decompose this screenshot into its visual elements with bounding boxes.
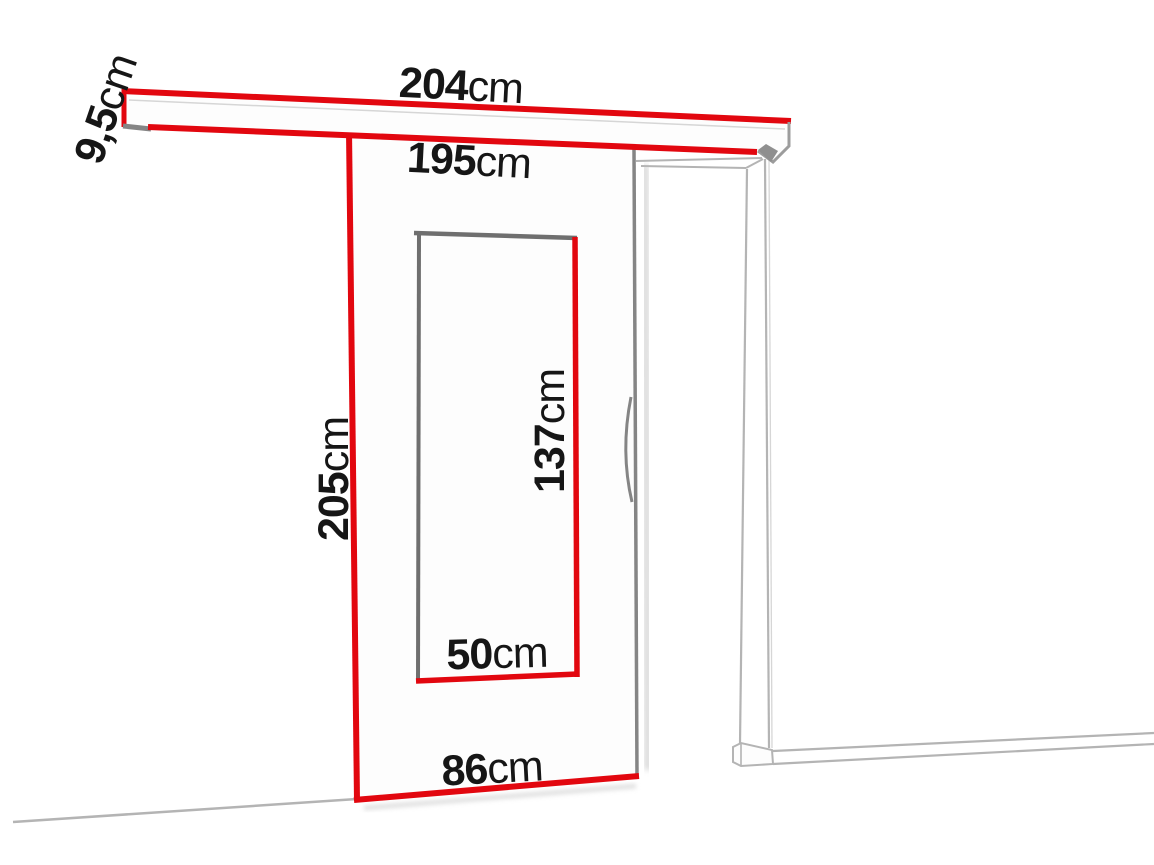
door-width-label: 86cm bbox=[440, 742, 544, 795]
door-height-label: 205cm bbox=[310, 417, 358, 541]
skirting-bottom-line bbox=[773, 744, 1154, 764]
rail-left-shadow bbox=[123, 126, 151, 129]
skirting-top-line bbox=[773, 733, 1154, 751]
door-right-shadow bbox=[645, 165, 648, 770]
door-panel bbox=[349, 131, 648, 808]
door-technical-diagram: 204cm 9,5cm 195cm 205cm 137cm 50cm 86cm bbox=[0, 0, 1154, 865]
glass-right-edge bbox=[575, 237, 577, 677]
floor-line-left bbox=[13, 799, 357, 822]
diagram-canvas: 204cm 9,5cm 195cm 205cm 137cm 50cm 86cm bbox=[0, 0, 1154, 865]
lintel-bevel bbox=[746, 159, 763, 168]
door-panel-face bbox=[349, 133, 637, 799]
glass-left-edge bbox=[418, 232, 419, 682]
lintel-inner-edge bbox=[641, 166, 746, 168]
glass-width-label: 50cm bbox=[446, 629, 548, 680]
glass-height-label: 137cm bbox=[526, 369, 574, 493]
post-plinth bbox=[733, 743, 773, 766]
clear-width-label: 195cm bbox=[406, 134, 532, 188]
lintel-outer-edge bbox=[636, 158, 762, 161]
post-left-edge bbox=[740, 169, 747, 744]
door-frame bbox=[636, 158, 773, 766]
post-right-edge bbox=[765, 159, 769, 748]
rail-length-label: 204cm bbox=[398, 59, 524, 113]
